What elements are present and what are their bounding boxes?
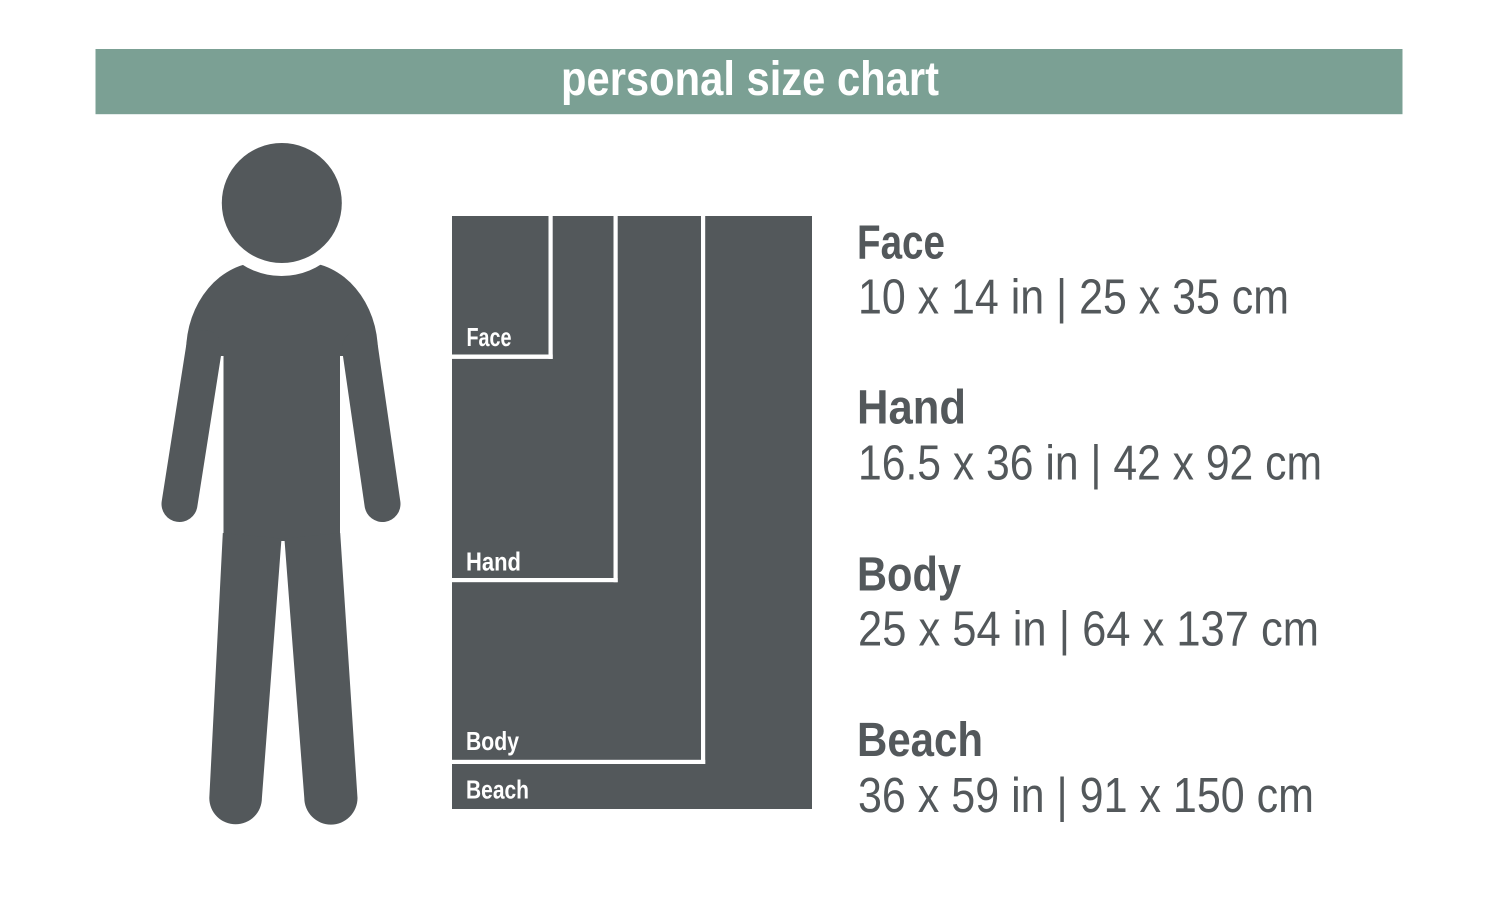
svg-text:Body: Body	[466, 726, 519, 756]
svg-text:Hand: Hand	[466, 547, 521, 577]
svg-text:Hand: Hand	[857, 382, 966, 435]
svg-text:Beach: Beach	[466, 775, 529, 805]
svg-text:10 x 14 in | 25 x 35 cm: 10 x 14 in | 25 x 35 cm	[858, 271, 1289, 325]
svg-text:Beach: Beach	[857, 714, 983, 767]
svg-text:Face: Face	[857, 217, 945, 270]
svg-text:Body: Body	[857, 548, 961, 601]
svg-text:25 x 54 in | 64 x 137 cm: 25 x 54 in | 64 x 137 cm	[858, 602, 1319, 656]
svg-text:Face: Face	[467, 322, 512, 352]
svg-text:16.5 x 36 in | 42 x 92 cm: 16.5 x 36 in | 42 x 92 cm	[858, 436, 1322, 490]
svg-text:personal size chart: personal size chart	[561, 53, 939, 106]
svg-text:36 x 59 in | 91 x 150 cm: 36 x 59 in | 91 x 150 cm	[858, 769, 1314, 823]
